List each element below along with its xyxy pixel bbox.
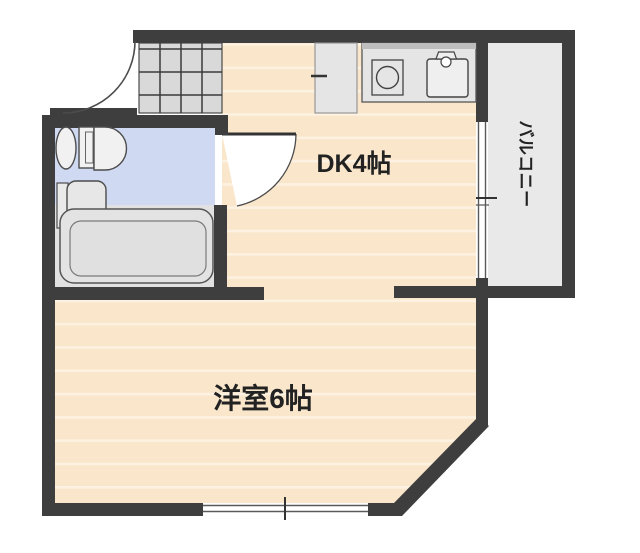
wall-bath-right-upper (215, 115, 228, 135)
faucet-icon (441, 57, 451, 67)
kitchen-sink-icon (427, 52, 468, 97)
wall-bath-bottom (42, 287, 264, 300)
wall-dk-right-upper (476, 30, 488, 122)
dk-label: DK4帖 (316, 150, 391, 178)
refrigerator-space (315, 43, 357, 113)
wall-bath-right-lower (214, 205, 227, 287)
wall-bottom-right (368, 503, 402, 516)
counter-edge (362, 43, 476, 49)
wall-top (133, 30, 575, 43)
entrance-door-leaf (50, 108, 137, 115)
floor-plan-drawing: DK4帖 洋室6帖 バルコニー (0, 0, 640, 553)
toilet-icon (56, 127, 127, 170)
wall-room-right (476, 286, 488, 426)
western-room-label: 洋室6帖 (213, 382, 313, 414)
wall-bath-top (42, 115, 228, 128)
kitchen-unit (311, 43, 476, 113)
wall-bottom-left (42, 503, 203, 516)
bathtub-icon (60, 209, 213, 283)
wall-balcony-right (562, 30, 575, 298)
balcony-label: バルコニー (516, 120, 535, 207)
wall-left (42, 115, 55, 516)
floor-plan: DK4帖 洋室6帖 バルコニー (0, 0, 640, 553)
